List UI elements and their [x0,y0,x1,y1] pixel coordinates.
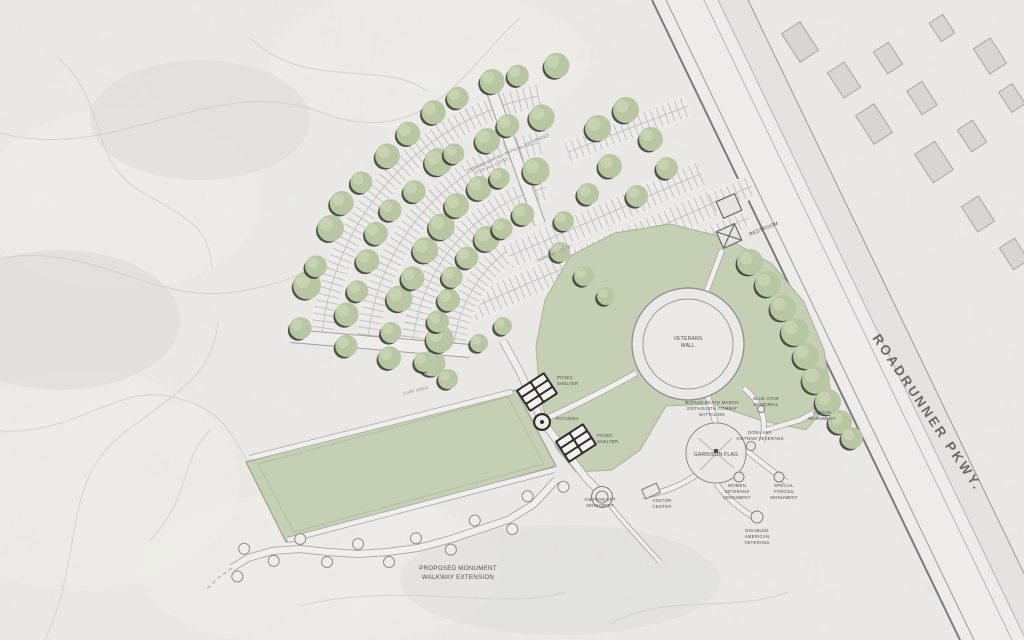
label-disabled-american-2: AMERICAN [745,534,770,539]
label-visitor-center-2: CENTER [652,504,671,509]
label-blue-star: BLUE STAR [753,396,779,401]
site-plan-canvas: ROADRUNNER PKWY. [0,0,1024,640]
label-veterans-wall: VETERANS [674,336,703,342]
label-special-forces-2: FORCES [774,489,793,494]
label-veterans-wall-2: WALL [681,343,695,349]
label-proposed-walkway-2: WALKWAY EXTENSION [422,574,494,581]
label-picnic-shelter-2b: SHELTER [597,439,618,444]
dona-ana-pad [747,442,756,451]
label-disabled-american-3: VETERANS [744,540,769,545]
label-vietnam-vet: VIETNAM VET [584,497,616,502]
label-bataan-death-march-3: BATTALION [699,412,725,417]
special-forces-pad [774,472,784,482]
rotunda-structure [533,413,551,431]
label-bataan-death-march-2: 200TH/515TH COMBAT [687,406,738,411]
label-bataan-death-march: BATAAN DEATH MARCH [685,400,738,405]
label-blue-star-2: MEMORIAL [754,402,779,407]
label-disabled-american: DISABLED [745,528,768,533]
label-dona-ana: DOÑA ANA [748,430,772,435]
women-veterans-pad [734,472,744,482]
disabled-veterans-pad [751,511,763,523]
site-plan-drawing: ROADRUNNER PKWY. [0,0,1024,640]
label-bataan-monument-2: MONUMENT [808,416,835,421]
label-picnic-shelter-1: PICNIC [557,375,573,380]
label-dona-ana-2: VIETNAM VETERANS [736,436,783,441]
label-special-forces-3: MONUMENT [770,495,797,500]
label-garrison-flag: GARRISON FLAG [694,452,738,458]
label-proposed-walkway: PROPOSED MONUMENT [419,565,496,572]
label-women-veterans-3: MONUMENT [723,495,750,500]
label-bataan-monument: BATAAN [813,410,831,415]
label-women-veterans: WOMEN [728,483,746,488]
label-visitor-center: VISITOR [653,498,672,503]
label-picnic-shelter-2: PICNIC [597,433,613,438]
label-women-veterans-2: VETERANS [724,489,749,494]
label-special-forces: SPECIAL [774,483,794,488]
label-rotunda: ROTUNDA [556,416,579,421]
label-picnic-shelter-1b: SHELTER [557,381,578,386]
label-vietnam-vet-2: MONUMENT [586,503,613,508]
